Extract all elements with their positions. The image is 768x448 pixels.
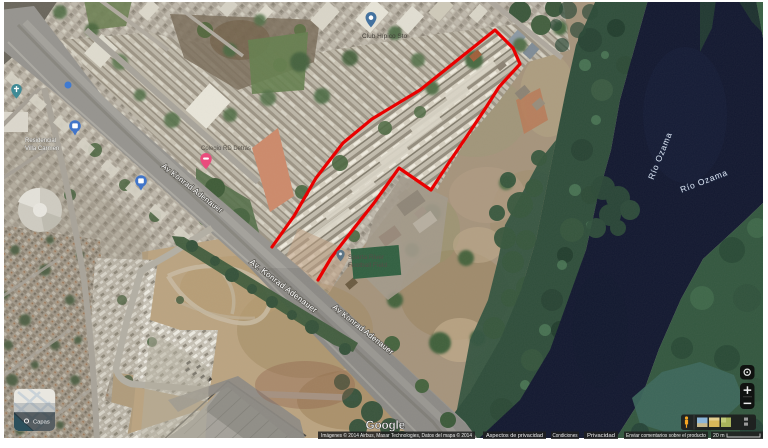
svg-text:Enviar comentarios sobre el pr: Enviar comentarios sobre el producto bbox=[626, 433, 706, 439]
svg-text:Club Hípico Sto: Club Hípico Sto bbox=[362, 33, 408, 40]
svg-text:Imágenes © 2014 Airbus, Maxar: Imágenes © 2014 Airbus, Maxar Technologi… bbox=[321, 432, 472, 439]
svg-text:Football Field: Football Field bbox=[348, 262, 387, 269]
svg-text:Sparta River: Sparta River bbox=[348, 254, 385, 261]
svg-text:Condiciones: Condiciones bbox=[553, 433, 578, 439]
svg-text:Privacidad: Privacidad bbox=[587, 433, 615, 439]
svg-text:20 m: 20 m bbox=[713, 433, 725, 439]
svg-text:Villa Carmen: Villa Carmen bbox=[25, 146, 59, 152]
svg-text:Google: Google bbox=[366, 418, 406, 432]
svg-text:Residencial: Residencial bbox=[25, 138, 56, 144]
svg-text:Aspectos de privacidad: Aspectos de privacidad bbox=[486, 433, 543, 439]
svg-text:Capas: Capas bbox=[33, 420, 50, 426]
svg-text:Colegio RD Detrás: Colegio RD Detrás bbox=[201, 146, 251, 152]
